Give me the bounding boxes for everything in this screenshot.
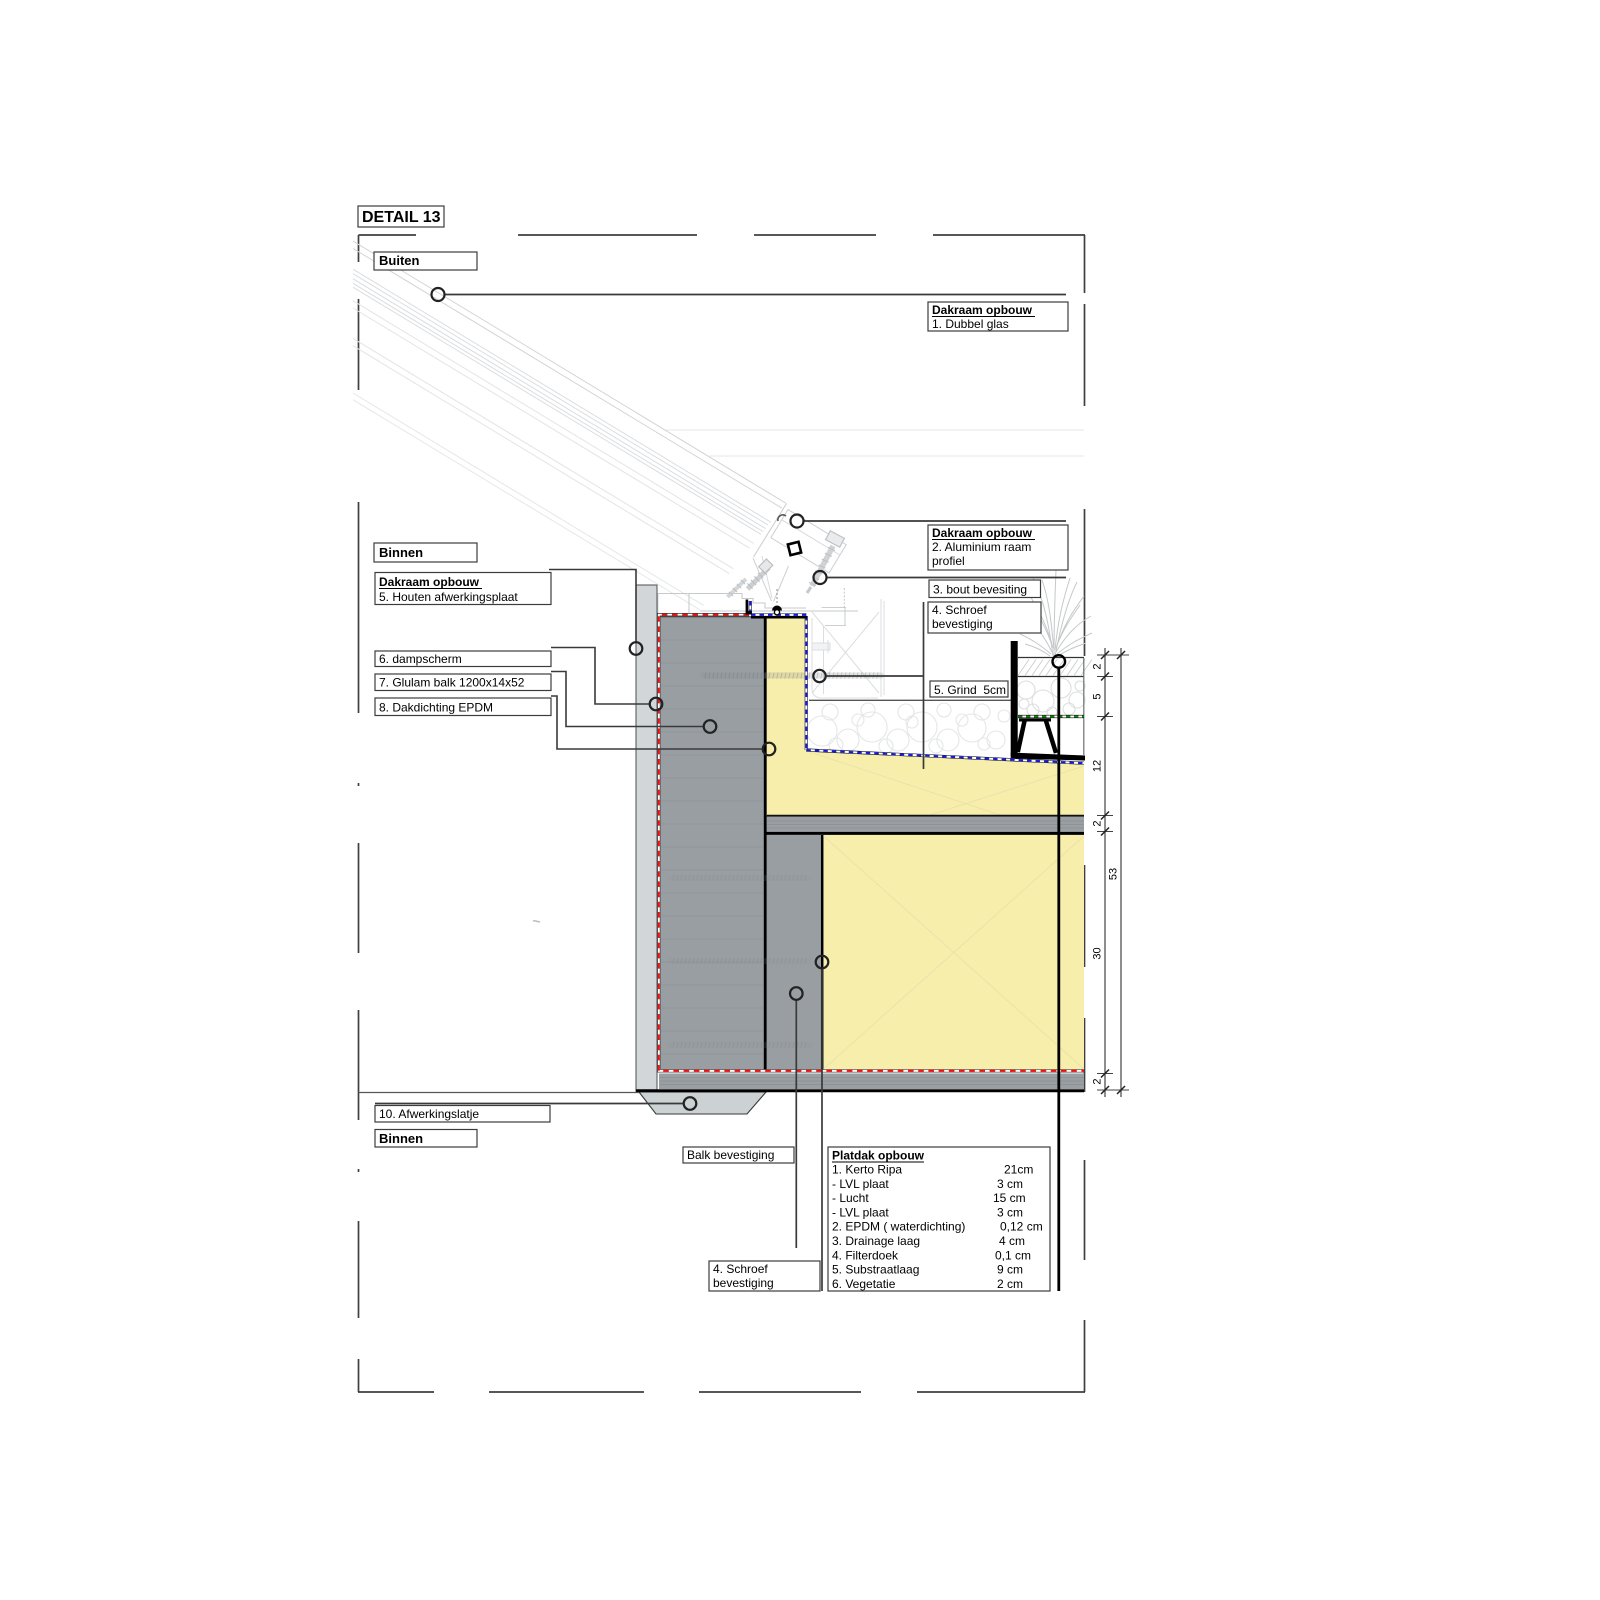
svg-text:10. Afwerkingslatje: 10. Afwerkingslatje: [379, 1107, 479, 1121]
svg-text:Balk bevestiging: Balk bevestiging: [687, 1148, 774, 1162]
svg-text:0,1 cm: 0,1 cm: [995, 1248, 1031, 1262]
svg-text:4. Filterdoek: 4. Filterdoek: [832, 1248, 899, 1262]
svg-text:5. Houten afwerkingsplaat: 5. Houten afwerkingsplaat: [379, 590, 518, 604]
svg-text:3. bout bevesiting: 3. bout bevesiting: [933, 583, 1027, 597]
svg-text:Binnen: Binnen: [379, 1131, 423, 1146]
svg-text:2. Aluminium raam: 2. Aluminium raam: [932, 540, 1031, 554]
svg-text:3. Drainage laag: 3. Drainage laag: [832, 1234, 920, 1248]
svg-text:5. Grind 5cm: 5. Grind 5cm: [934, 683, 1006, 697]
svg-text:2. EPDM ( waterdichting): 2. EPDM ( waterdichting): [832, 1220, 965, 1234]
svg-text:7. Glulam balk 1200x14x52: 7. Glulam balk 1200x14x52: [379, 676, 525, 690]
svg-text:4. Schroef: 4. Schroef: [713, 1262, 768, 1276]
svg-text:Dakraam opbouw: Dakraam opbouw: [932, 303, 1033, 317]
svg-text:6. Vegetatie: 6. Vegetatie: [832, 1277, 896, 1291]
svg-text:1. Kerto Ripa: 1. Kerto Ripa: [832, 1163, 902, 1177]
svg-text:- LVL plaat: - LVL plaat: [832, 1205, 889, 1219]
svg-text:4. Schroef: 4. Schroef: [932, 603, 987, 617]
svg-text:- Lucht: - Lucht: [832, 1191, 869, 1205]
svg-text:bevestiging: bevestiging: [713, 1276, 774, 1290]
svg-text:21cm: 21cm: [1004, 1163, 1033, 1177]
svg-text:8. Dakdichting EPDM: 8. Dakdichting EPDM: [379, 701, 493, 715]
svg-text:Buiten: Buiten: [379, 253, 420, 268]
svg-text:Binnen: Binnen: [379, 545, 423, 560]
svg-text:0,12 cm: 0,12 cm: [1000, 1220, 1043, 1234]
svg-text:3 cm: 3 cm: [997, 1205, 1023, 1219]
svg-text:Dakraam opbouw: Dakraam opbouw: [932, 526, 1033, 540]
svg-text:2: 2: [1092, 1078, 1104, 1084]
svg-text:53: 53: [1108, 868, 1120, 880]
svg-text:2 cm: 2 cm: [997, 1277, 1023, 1291]
svg-text:6. dampscherm: 6. dampscherm: [379, 652, 462, 666]
svg-text:12: 12: [1092, 760, 1104, 772]
svg-text:2: 2: [1092, 663, 1104, 669]
svg-text:4 cm: 4 cm: [999, 1234, 1025, 1248]
svg-text:1. Dubbel glas: 1. Dubbel glas: [932, 317, 1009, 331]
svg-text:DETAIL 13: DETAIL 13: [362, 209, 441, 226]
svg-text:2: 2: [1092, 820, 1104, 826]
svg-text:5. Substraatlaag: 5. Substraatlaag: [832, 1263, 919, 1277]
svg-text:3 cm: 3 cm: [997, 1177, 1023, 1191]
svg-text:5: 5: [1092, 693, 1104, 699]
svg-text:Dakraam opbouw: Dakraam opbouw: [379, 575, 480, 589]
svg-text:9 cm: 9 cm: [997, 1263, 1023, 1277]
svg-text:30: 30: [1092, 947, 1104, 959]
svg-text:profiel: profiel: [932, 554, 965, 568]
svg-text:- LVL plaat: - LVL plaat: [832, 1177, 889, 1191]
svg-text:Platdak opbouw: Platdak opbouw: [832, 1149, 925, 1163]
svg-text:15 cm: 15 cm: [993, 1191, 1026, 1205]
svg-text:bevestiging: bevestiging: [932, 617, 993, 631]
